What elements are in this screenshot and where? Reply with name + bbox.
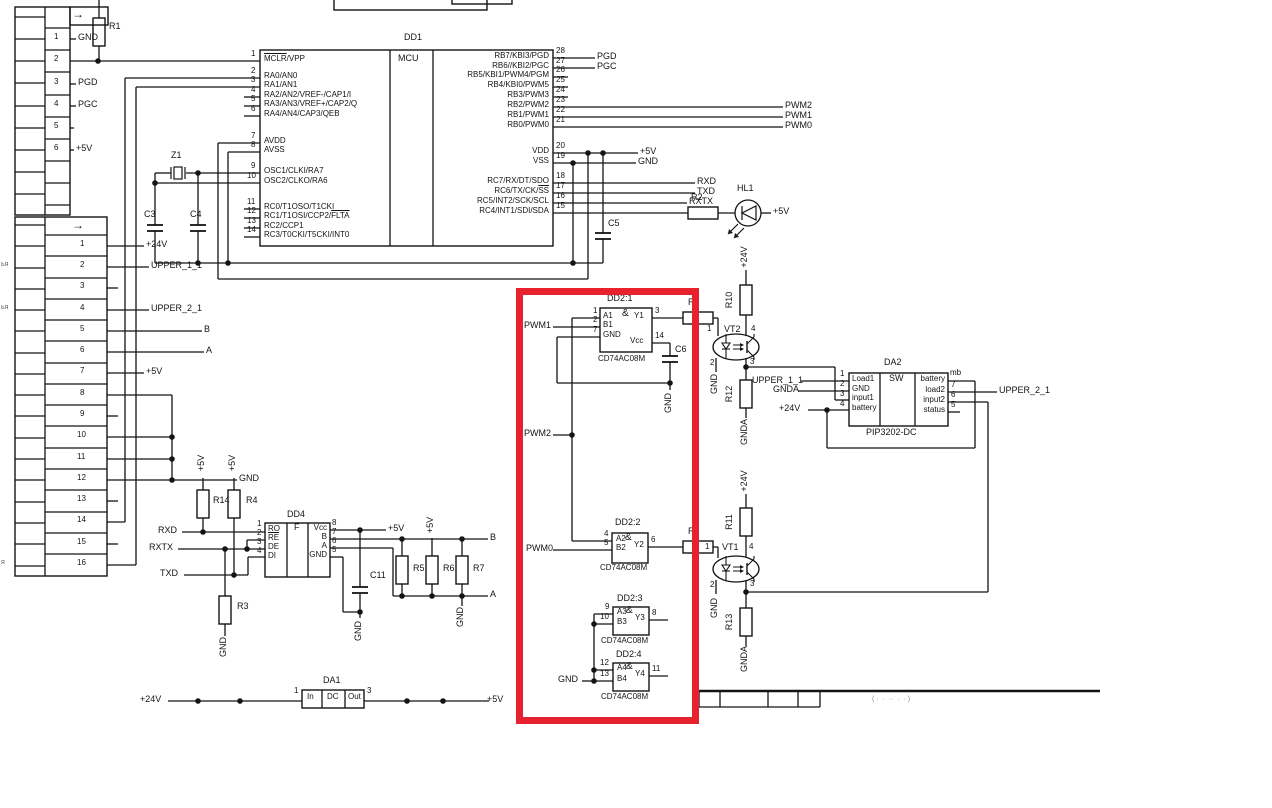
schematic-label: load2: [925, 386, 945, 395]
schematic-label: In: [307, 693, 314, 702]
schematic-label: R2: [691, 193, 703, 203]
schematic-label: 22: [556, 106, 565, 115]
schematic-label: RA3/AN3/VREF+/CAP2/Q: [264, 100, 357, 109]
schematic-label: PGD: [78, 78, 98, 88]
schematic-label: 9: [80, 410, 84, 419]
schematic-label: 20: [556, 142, 565, 151]
schematic-label: 7: [951, 381, 955, 390]
schematic-label: SW: [889, 374, 904, 384]
schematic-label: MCU: [398, 54, 419, 64]
schematic-label: HL1: [737, 184, 754, 194]
schematic-vertical-label: +24V: [740, 227, 752, 287]
schematic-vertical-label: +5V: [197, 433, 209, 493]
schematic-label: VDD: [532, 147, 549, 156]
schematic-label: 17: [556, 182, 565, 191]
schematic-label: 1: [54, 33, 58, 42]
schematic-label: 5: [951, 401, 955, 410]
schematic-label: 8: [251, 141, 255, 150]
schematic-label: GNDA: [773, 385, 799, 395]
schematic-label: R5: [413, 564, 425, 574]
schematic-label: R3: [237, 602, 249, 612]
schematic-label: 26: [556, 66, 565, 75]
schematic-label: 5: [80, 325, 84, 334]
schematic-label: 8: [80, 389, 84, 398]
schematic-label: TXD: [160, 569, 178, 579]
schematic-label: 16: [77, 559, 86, 568]
schematic-label: input2: [923, 396, 945, 405]
schematic-label: 3: [750, 358, 754, 367]
schematic-label: C5: [608, 219, 620, 229]
schematic-label: 3: [840, 390, 844, 399]
schematic-label: 14: [247, 226, 256, 235]
schematic-label: +24V: [779, 404, 800, 414]
schematic-label: ( · · ·· · · ): [872, 696, 910, 704]
schematic-label: DD4: [287, 510, 305, 520]
schematic-label: UPPER_1_1: [151, 261, 202, 271]
schematic-label: 12: [77, 474, 86, 483]
schematic-label: 16: [556, 192, 565, 201]
schematic-vertical-label: GNDA: [740, 629, 752, 689]
schematic-label: OSC1/CLKI/RA7: [264, 167, 324, 176]
schematic-label: 1: [294, 687, 298, 696]
schematic-label: B: [204, 325, 210, 335]
schematic-vertical-label: R13: [725, 592, 737, 652]
schematic-label: UPPER_2_1: [999, 386, 1050, 396]
schematic-label: 1: [707, 325, 711, 334]
schematic-label: 4: [257, 547, 261, 556]
schematic-vertical-label: GND: [710, 578, 722, 638]
label-part: FLTA: [331, 211, 349, 220]
schematic-label: 5: [251, 95, 255, 104]
schematic-label: 15: [556, 202, 565, 211]
schematic-vertical-label: +5V: [426, 495, 438, 555]
schematic-label: RC4/INT1/SDI/SDA: [479, 207, 549, 216]
schematic-label: R4: [246, 496, 258, 506]
label-part: MCLR: [264, 54, 287, 63]
schematic-label: status: [924, 406, 945, 415]
schematic-label: RB1/PWM1: [507, 111, 549, 120]
schematic-label: Out: [348, 693, 361, 702]
schematic-label: OSC2/CLKO/RA6: [264, 177, 328, 186]
schematic-page: →123456GNDPGDPGC+5VR1→123456789101112131…: [0, 0, 1272, 808]
schematic-label: RB0/PWM0: [507, 121, 549, 130]
schematic-label: 5: [54, 122, 58, 131]
schematic-label: 7: [80, 367, 84, 376]
schematic-label: 4: [54, 100, 58, 109]
schematic-label: 3: [251, 76, 255, 85]
schematic-label: RB5/KBI1/PWM4/PGM: [467, 71, 549, 80]
schematic-label: GND: [78, 33, 98, 43]
schematic-label: R14: [213, 496, 230, 506]
schematic-label: PIP3202-DC: [866, 428, 917, 438]
schematic-label: VSS: [533, 157, 549, 166]
schematic-vertical-label: GND: [456, 587, 468, 647]
schematic-label: я: [1, 559, 5, 567]
connector1-direction-arrow: →: [72, 8, 84, 21]
schematic-label: mb: [950, 369, 961, 378]
schematic-vertical-label: GND: [710, 354, 722, 414]
schematic-label: C3: [144, 210, 156, 220]
schematic-label: 4: [840, 400, 844, 409]
schematic-label: 13: [77, 495, 86, 504]
schematic-label: 19: [556, 152, 565, 161]
schematic-label: battery: [921, 375, 945, 384]
schematic-label: 25: [556, 76, 565, 85]
schematic-label: RA1/AN1: [264, 81, 297, 90]
schematic-label: 2: [80, 261, 84, 270]
schematic-label: +5V: [388, 524, 404, 534]
schematic-label: 15: [77, 538, 86, 547]
label-part: SS: [538, 186, 549, 195]
schematic-label: 3: [367, 687, 371, 696]
schematic-label: +5V: [487, 695, 503, 705]
schematic-label: 21: [556, 116, 565, 125]
schematic-label: 3: [54, 78, 58, 87]
schematic-vertical-label: R12: [725, 364, 737, 424]
schematic-label: R7: [473, 564, 485, 574]
schematic-label: DD1: [404, 33, 422, 43]
schematic-label: Load1: [852, 375, 874, 384]
schematic-label: 6: [251, 105, 255, 114]
schematic-label: RC5/INT2/SCK/SCL: [477, 197, 549, 206]
schematic-label: 4: [751, 325, 755, 334]
schematic-vertical-label: GND: [354, 601, 366, 661]
schematic-label: DC: [327, 693, 339, 702]
schematic-label: 9: [251, 162, 255, 171]
schematic-label: battery: [852, 404, 876, 413]
schematic-label: GND: [239, 474, 259, 484]
schematic-label: F: [294, 523, 300, 533]
schematic-label: 6: [80, 346, 84, 355]
schematic-label: AVSS: [264, 146, 285, 155]
schematic-label: ья: [1, 261, 8, 269]
schematic-label: RC6/TX/CK/SS: [494, 187, 549, 196]
schematic-label: +5V: [76, 144, 92, 154]
schematic-label: 1: [251, 50, 255, 59]
connector2-direction-arrow: →: [72, 219, 84, 232]
schematic-label: RC7/RX/DT/SDO: [487, 177, 549, 186]
schematic-label: GND: [638, 157, 658, 167]
schematic-label: +5V: [773, 207, 789, 217]
schematic-label: 12: [247, 207, 256, 216]
schematic-label: RB7/KBI3/PGD: [494, 52, 549, 61]
schematic-label: 18: [556, 172, 565, 181]
schematic-label: RB4/KBI0/PWM5: [488, 81, 549, 90]
schematic-label: R1: [109, 22, 121, 32]
schematic-label: RXD: [158, 526, 177, 536]
schematic-vertical-label: R10: [725, 270, 737, 330]
schematic-label: 28: [556, 47, 565, 56]
schematic-label: PWM0: [785, 121, 812, 131]
schematic-label: 1: [80, 240, 84, 249]
schematic-label: GND: [309, 551, 327, 560]
schematic-label: C4: [190, 210, 202, 220]
label-part: RE: [268, 533, 279, 542]
schematic-vertical-label: +5V: [228, 433, 240, 493]
schematic-label: RXTX: [149, 543, 173, 553]
schematic-label: 6: [951, 391, 955, 400]
schematic-label: +5V: [146, 367, 162, 377]
schematic-label: RB2/PWM2: [507, 101, 549, 110]
schematic-label: Z1: [171, 151, 182, 161]
schematic-vertical-label: +24V: [740, 451, 752, 511]
schematic-label: A: [490, 590, 496, 600]
schematic-label: B: [490, 533, 496, 543]
schematic-label: DI: [268, 552, 276, 561]
schematic-label: C11: [370, 571, 386, 581]
schematic-label: DA2: [884, 358, 902, 368]
schematic-label: 14: [77, 516, 86, 525]
schematic-label: DA1: [323, 676, 341, 686]
schematic-label: RB3/PWM3: [507, 91, 549, 100]
schematic-vertical-label: R11: [725, 492, 737, 552]
schematic-label: MCLR/VPP: [264, 55, 305, 64]
schematic-label: PGC: [597, 62, 617, 72]
schematic-label: +24V: [140, 695, 161, 705]
schematic-label: 10: [77, 431, 86, 440]
label-part: RC1/T1OSI/CCP2/: [264, 211, 331, 220]
schematic-label: 3: [80, 282, 84, 291]
schematic-label: 11: [77, 453, 85, 462]
schematic-label: ья: [1, 304, 8, 312]
schematic-label: 10: [247, 172, 256, 181]
schematic-label: 1: [840, 370, 844, 379]
schematic-label: PGC: [78, 100, 98, 110]
schematic-label: 6: [54, 144, 58, 153]
schematic-label: +24V: [146, 240, 167, 250]
schematic-vertical-label: GND: [219, 617, 231, 677]
schematic-label: 23: [556, 96, 565, 105]
schematic-label: 2: [840, 380, 844, 389]
schematic-label: A: [206, 346, 212, 356]
schematic-label: 1: [705, 543, 709, 552]
schematic-label: RC1/T1OSI/CCP2/FLTA: [264, 212, 350, 221]
highlight-rectangle: [516, 288, 699, 724]
schematic-label: 2: [54, 55, 58, 64]
schematic-label: 4: [80, 304, 84, 313]
schematic-label: RC3/T0CKI/T5CKI/INT0: [264, 231, 349, 240]
schematic-label: 5: [332, 546, 336, 555]
schematic-label: 24: [556, 86, 565, 95]
label-part: /VPP: [287, 54, 305, 63]
schematic-label: 3: [750, 580, 754, 589]
schematic-label: R6: [443, 564, 455, 574]
schematic-label: UPPER_2_1: [151, 304, 202, 314]
schematic-label: 4: [749, 543, 753, 552]
schematic-label: input1: [852, 394, 874, 403]
label-part: RC6/TX/CK/: [494, 186, 538, 195]
schematic-label: RA4/AN4/CAP3/QEB: [264, 110, 340, 119]
